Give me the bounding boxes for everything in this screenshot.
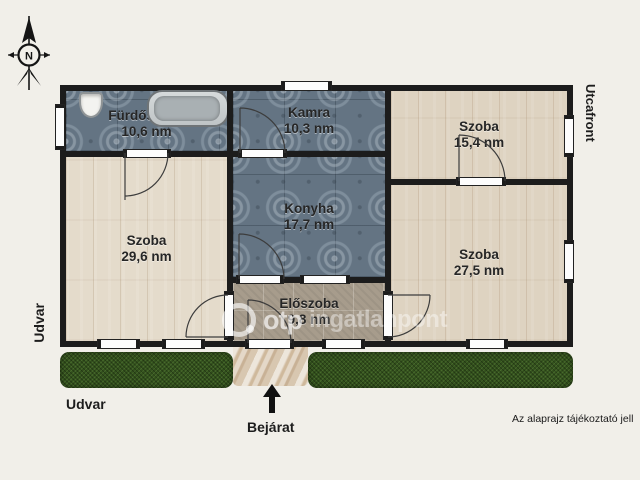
- compass-north-label: N: [25, 51, 33, 63]
- label-utcafront: Utcafront: [583, 84, 598, 142]
- door-szoba-15-4: [456, 177, 506, 186]
- window: [97, 339, 140, 349]
- doorway-eloszoba-konyha: [300, 275, 350, 284]
- door-szoba-27-5: [383, 291, 393, 340]
- wall: [66, 151, 391, 157]
- label-udvar-bottom: Udvar: [66, 396, 106, 412]
- bathtub: [147, 90, 229, 127]
- entrance-path: [233, 347, 308, 386]
- compass-icon: N: [6, 12, 52, 94]
- bathtub-basin: [154, 96, 220, 121]
- door-konyha: [236, 275, 284, 284]
- entrance-door: [245, 339, 294, 349]
- floorplan-image: N Fürdőszoba 10,6 nm Kamra 10,3 nm Szoba…: [0, 0, 640, 480]
- window: [322, 339, 365, 349]
- window: [564, 240, 574, 283]
- grass-strip-left: [60, 352, 233, 388]
- entrance-arrow-icon: [255, 382, 289, 415]
- grass-strip-right: [308, 352, 573, 388]
- window: [281, 81, 332, 91]
- window: [564, 115, 574, 157]
- window: [162, 339, 205, 349]
- label-udvar-left: Udvar: [31, 303, 47, 343]
- door-kamra: [238, 149, 287, 158]
- label-bejarat: Bejárat: [247, 419, 294, 435]
- door-furdoszoba: [123, 149, 171, 158]
- window: [466, 339, 508, 349]
- door-szoba-29-6: [224, 291, 234, 340]
- window: [55, 104, 65, 150]
- exterior-wall: [60, 85, 573, 347]
- disclaimer-text: Az alaprajz tájékoztató jell: [512, 413, 633, 425]
